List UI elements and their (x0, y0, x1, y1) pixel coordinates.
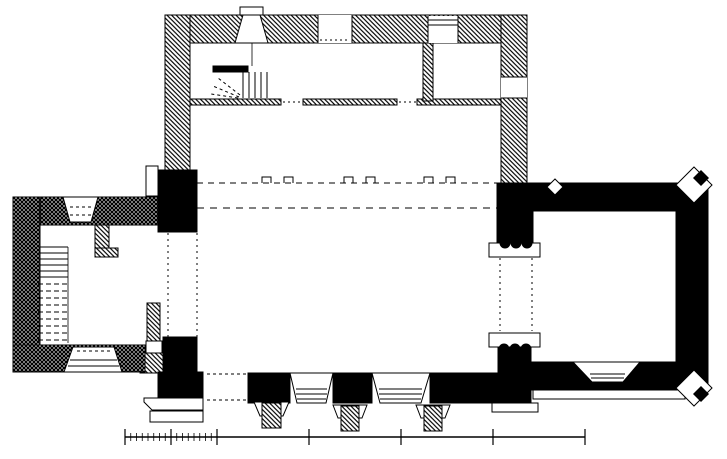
nave-north-wall-segment-2 (303, 99, 397, 105)
respond-scallop (510, 344, 521, 355)
respond-scallop (499, 344, 510, 355)
northwest-pier (158, 170, 197, 232)
south-respond-base (492, 403, 538, 412)
floor-plan-figure (0, 0, 727, 459)
north-window-buttress (240, 7, 263, 15)
respond-scallop (500, 238, 511, 249)
vestry-east-door (501, 77, 527, 98)
respond-scallop (522, 238, 533, 249)
southwest-pier (163, 337, 197, 372)
north-range-west-wall (165, 15, 190, 173)
floor-plan-drawing (0, 0, 727, 459)
chancel-south-plinth (533, 390, 685, 399)
sw-pier-west-notch (146, 341, 162, 353)
chancel-arch-north-respond (497, 185, 533, 245)
tower-arch-north-jamb-foot (95, 248, 118, 257)
south-wall-chunk-b (333, 373, 372, 403)
north-stair-top (213, 66, 248, 72)
chancel-east-wall (676, 183, 708, 390)
south-buttress-3 (424, 406, 442, 431)
sw-pier-base (144, 398, 203, 410)
respond-scallop (511, 238, 522, 249)
north-doorway-opening (318, 15, 352, 43)
nw-pier-buttress (146, 166, 158, 196)
south-wall-chunk-a (248, 373, 290, 403)
south-wall-chunk-c (430, 373, 498, 403)
chancel-arch-south-respond (498, 347, 531, 403)
southwest-pier-foot (158, 372, 203, 398)
respond-scallop (521, 344, 532, 355)
south-buttress-1 (262, 403, 281, 428)
north-range-east-wall (501, 15, 527, 185)
sw-pier-step (150, 411, 203, 422)
vestry-west-wall (423, 43, 433, 101)
nave-north-wall-segment-1 (190, 99, 281, 105)
south-buttress-2 (341, 406, 359, 431)
